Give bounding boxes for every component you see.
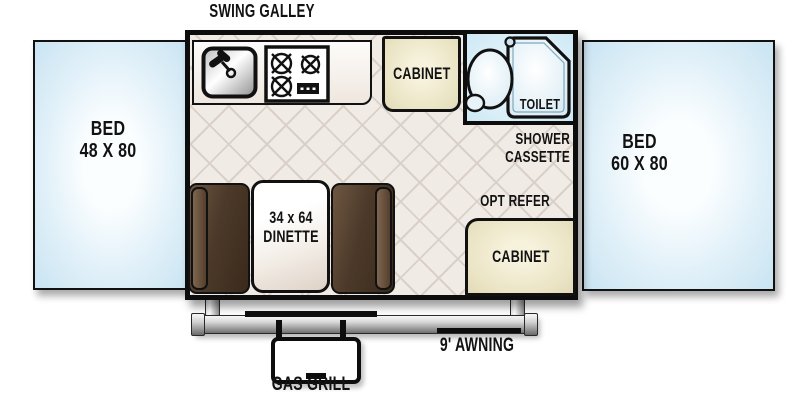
- dinette-label: 34 x 64 DINETTE: [254, 208, 328, 246]
- bed-left-name: BED: [40, 118, 176, 140]
- bed-right-name: BED: [594, 131, 686, 153]
- bed-left-label: BED 48 X 80: [40, 118, 176, 162]
- grill-mount-arm-left: [276, 320, 282, 338]
- swing-galley-label: SWING GALLEY: [203, 2, 321, 21]
- awning-rail-cap-left: [191, 313, 205, 336]
- gas-grill-label: GAS GRILL: [259, 375, 363, 396]
- dinette-bench-right: [331, 183, 395, 294]
- awning-fabric-strip-bottom: [437, 328, 521, 333]
- bench-armrest: [191, 187, 208, 290]
- bench-armrest: [375, 187, 392, 290]
- grill-mount-arm-right: [340, 320, 346, 338]
- cabinet-top-label: CABINET: [393, 65, 450, 83]
- opt-refer-label: OPT REFER: [471, 193, 560, 210]
- shower-cassette-line2: CASSETTE: [487, 149, 570, 167]
- bed-left-slideout: [33, 40, 190, 290]
- cabinet-top: CABINET: [382, 36, 461, 112]
- shower-cassette-line1: SHOWER: [487, 131, 570, 149]
- cabinet-bottom: CABINET: [465, 218, 576, 296]
- shower-head-icon: [506, 38, 515, 47]
- awning-fabric-strip-top: [245, 311, 377, 317]
- dinette-bench-left: [188, 183, 250, 294]
- dinette-name: DINETTE: [254, 227, 328, 246]
- sink-faucet-icon: [201, 46, 258, 99]
- cabinet-bottom-label: CABINET: [492, 248, 549, 266]
- stove-burners-icon: [264, 45, 330, 103]
- awning-rail-cap-right: [524, 313, 538, 336]
- toilet-label: TOILET: [514, 97, 566, 113]
- rv-floorplan-diagram: BED 48 X 80 BED 60 X 80: [0, 0, 800, 400]
- dinette-size: 34 x 64: [254, 208, 328, 227]
- awning-label: 9' AWNING: [425, 336, 529, 357]
- shower-cassette-label: SHOWER CASSETTE: [487, 131, 570, 167]
- bed-right-size: 60 X 80: [594, 153, 686, 175]
- bed-left-size: 48 X 80: [40, 140, 176, 162]
- bed-right-label: BED 60 X 80: [594, 131, 686, 175]
